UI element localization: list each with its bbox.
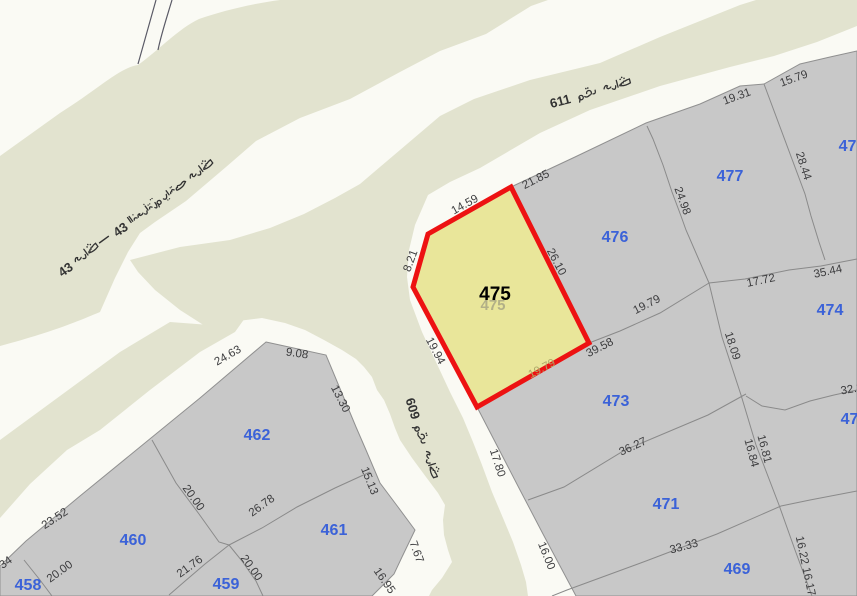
- svg-text:473: 473: [603, 393, 630, 410]
- svg-text:469: 469: [724, 561, 751, 578]
- svg-text:461: 461: [321, 522, 348, 539]
- svg-text:458: 458: [15, 577, 42, 594]
- svg-text:474: 474: [817, 302, 844, 319]
- svg-text:477: 477: [717, 168, 744, 185]
- svg-text:472: 472: [841, 411, 857, 428]
- svg-text:460: 460: [120, 532, 147, 549]
- svg-text:459: 459: [213, 576, 240, 593]
- svg-text:462: 462: [244, 427, 271, 444]
- svg-text:471: 471: [653, 496, 680, 513]
- svg-text:476: 476: [602, 229, 629, 246]
- svg-text:475: 475: [479, 284, 511, 305]
- svg-text:478: 478: [839, 138, 857, 155]
